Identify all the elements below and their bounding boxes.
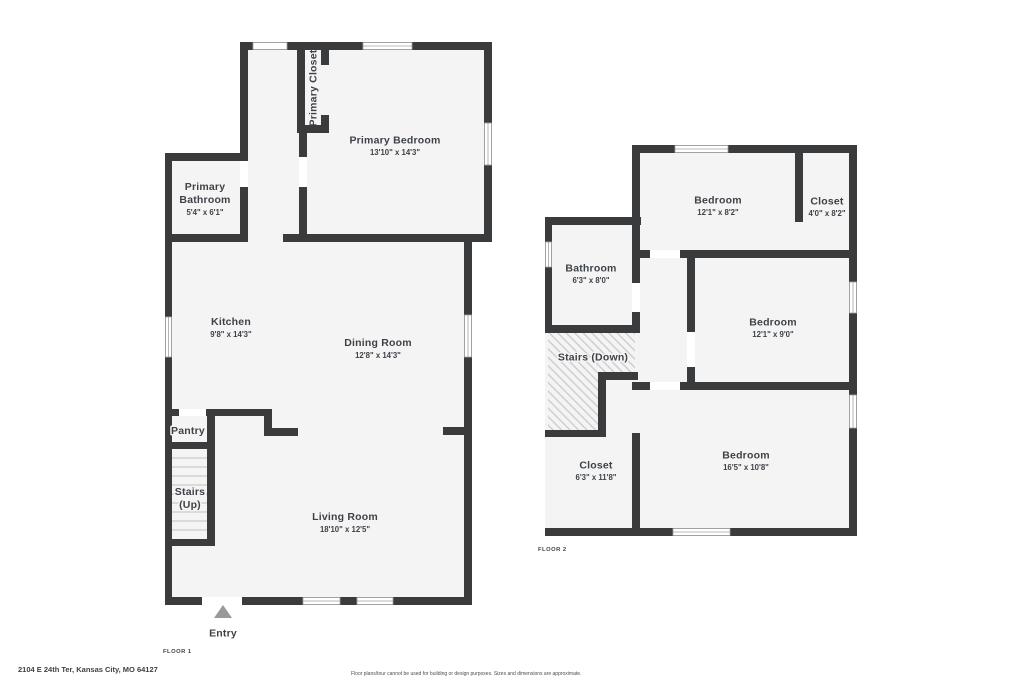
bathroom-dims: 6'3" x 8'0" <box>572 276 609 285</box>
closet-top-dims: 4'0" x 8'2" <box>808 209 845 218</box>
door-opening <box>687 332 695 367</box>
stairs-up-label: (Up) <box>179 499 201 511</box>
footer: 2104 E 24th Ter, Kansas City, MO 64127 F… <box>18 665 581 677</box>
primary-closet-label: Primary Closet <box>308 49 320 126</box>
bedroom-top-label: Bedroom <box>694 195 742 207</box>
bedroom-top-dims: 12'1" x 8'2" <box>697 208 739 217</box>
dining-room-label: Dining Room <box>344 337 412 349</box>
closet-bottom-label: Closet <box>579 460 613 472</box>
door-opening <box>179 409 206 416</box>
bedroom-middle-label: Bedroom <box>749 317 797 329</box>
entry-label: Entry <box>209 628 237 640</box>
floor-plan-page: Primary Closet Primary Bedroom 13'10" x … <box>0 0 1024 682</box>
primary-bathroom-label: Bathroom <box>179 194 230 206</box>
window <box>850 282 857 313</box>
pantry-label: Pantry <box>171 425 205 437</box>
window <box>363 43 412 50</box>
door-opening <box>632 283 640 312</box>
primary-bedroom-label: Primary Bedroom <box>349 135 440 147</box>
door-opening <box>240 161 248 187</box>
window <box>303 598 340 605</box>
floor1-plan: Primary Closet Primary Bedroom 13'10" x … <box>163 42 492 655</box>
window <box>357 598 393 605</box>
property-address: 2104 E 24th Ter, Kansas City, MO 64127 <box>18 665 158 674</box>
window <box>675 146 728 153</box>
door-opening <box>650 382 680 390</box>
disclaimer-text: Floor plans/tour cannot be used for buil… <box>351 671 581 677</box>
closet-top-label: Closet <box>810 196 844 208</box>
primary-bathroom-label: Primary <box>185 181 226 193</box>
bathroom-label: Bathroom <box>565 263 616 275</box>
bedroom-middle-dims: 12'1" x 9'0" <box>752 330 794 339</box>
window <box>465 315 472 357</box>
stairs-down-label: Stairs (Down) <box>558 352 628 364</box>
closet-bottom-dims: 6'3" x 11'8" <box>575 473 616 482</box>
bedroom-bottom-label: Bedroom <box>722 450 770 462</box>
window <box>485 123 492 165</box>
kitchen-dims: 9'8" x 14'3" <box>210 330 252 339</box>
window <box>546 242 552 267</box>
floor-plan-drawing: Primary Closet Primary Bedroom 13'10" x … <box>0 0 1024 682</box>
window <box>673 529 730 536</box>
primary-bedroom-dims: 13'10" x 14'3" <box>370 148 420 157</box>
stairs-up-label: Stairs <box>175 486 205 498</box>
door-opening <box>299 157 307 187</box>
primary-bathroom-dims: 5'4" x 6'1" <box>186 208 223 217</box>
entry-arrow-icon <box>214 605 232 618</box>
dining-room-dims: 12'8" x 14'3" <box>355 351 401 360</box>
floor1-title: FLOOR 1 <box>163 649 192 655</box>
window <box>166 317 172 357</box>
bedroom-bottom-dims: 16'5" x 10'8" <box>723 463 769 472</box>
door-opening <box>650 250 680 258</box>
window <box>253 43 287 50</box>
living-room-dims: 18'10" x 12'5" <box>320 525 370 534</box>
floor2-title: FLOOR 2 <box>538 547 567 553</box>
living-room-label: Living Room <box>312 511 378 523</box>
entry-opening <box>202 597 242 605</box>
kitchen-label: Kitchen <box>211 316 251 328</box>
floor2-plan: Bedroom 12'1" x 8'2" Closet 4'0" x 8'2" … <box>538 145 857 553</box>
window <box>850 395 857 428</box>
